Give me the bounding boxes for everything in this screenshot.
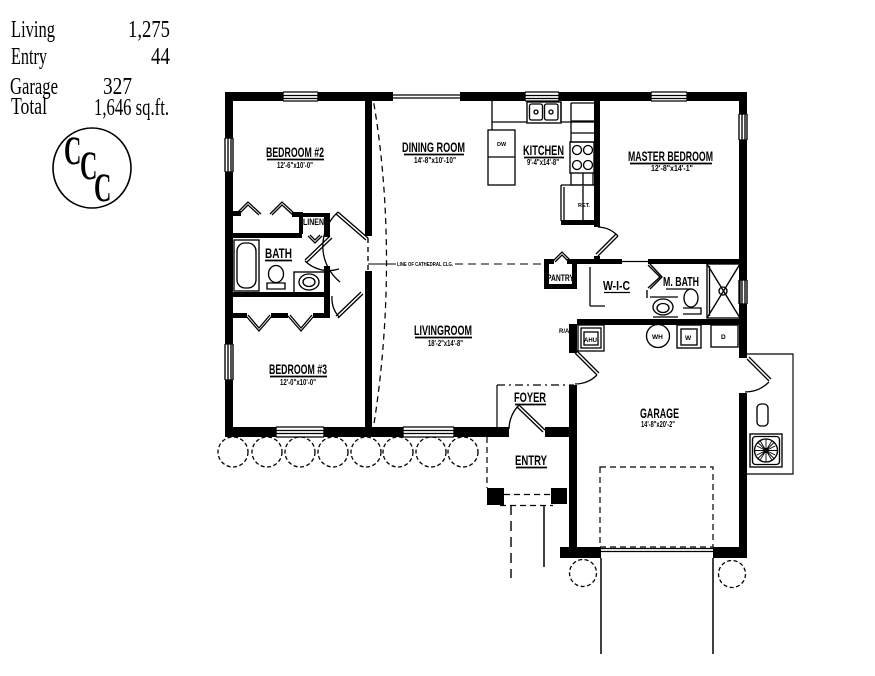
svg-text:D: D xyxy=(721,334,726,341)
svg-text:W: W xyxy=(685,335,692,342)
svg-text:GARAGE: GARAGE xyxy=(640,405,679,421)
svg-text:1,275: 1,275 xyxy=(128,17,170,43)
svg-text:9'-4"x14'-8": 9'-4"x14'-8" xyxy=(527,158,559,167)
svg-text:LINEN: LINEN xyxy=(303,217,324,228)
svg-text:BEDROOM #2: BEDROOM #2 xyxy=(266,144,324,160)
svg-text:KITCHEN: KITCHEN xyxy=(523,142,564,158)
svg-text:RET.: RET. xyxy=(578,203,590,209)
svg-text:WH: WH xyxy=(652,334,663,341)
svg-text:LINE OF CATHEDRAL CLG.: LINE OF CATHEDRAL CLG. xyxy=(397,262,453,268)
svg-text:Total: Total xyxy=(11,94,47,120)
svg-text:18'-2"x14'-8": 18'-2"x14'-8" xyxy=(428,339,463,348)
svg-text:12'-8"x14'-1": 12'-8"x14'-1" xyxy=(651,164,693,173)
svg-text:12'-0"x10'-0": 12'-0"x10'-0" xyxy=(280,378,316,387)
svg-text:12'-6"x10'-0": 12'-6"x10'-0" xyxy=(277,161,313,170)
svg-text:MASTER BEDROOM: MASTER BEDROOM xyxy=(628,148,713,164)
svg-text:ENTRY: ENTRY xyxy=(515,452,547,468)
svg-text:Entry: Entry xyxy=(11,44,47,70)
svg-text:DW: DW xyxy=(497,142,507,148)
svg-text:M. BATH: M. BATH xyxy=(663,275,699,289)
svg-text:R/A: R/A xyxy=(559,329,570,335)
svg-text:W-I-C: W-I-C xyxy=(603,279,630,293)
svg-text:LIVINGROOM: LIVINGROOM xyxy=(414,322,472,338)
svg-text:DINING ROOM: DINING ROOM xyxy=(402,139,465,155)
svg-text:14'-8"x10'-10": 14'-8"x10'-10" xyxy=(414,156,456,165)
svg-text:C: C xyxy=(64,130,81,174)
svg-text:44: 44 xyxy=(151,44,170,70)
svg-text:FOYER: FOYER xyxy=(514,389,546,405)
svg-text:AHU: AHU xyxy=(584,338,597,344)
svg-text:PANTRY: PANTRY xyxy=(547,273,574,283)
svg-text:C: C xyxy=(94,167,111,211)
svg-text:BEDROOM #3: BEDROOM #3 xyxy=(269,361,327,377)
svg-text:14'-8"x20'-2": 14'-8"x20'-2" xyxy=(641,420,675,429)
svg-text:1,646 sq.ft.: 1,646 sq.ft. xyxy=(94,95,169,121)
svg-text:BATH: BATH xyxy=(265,246,292,261)
svg-text:Living: Living xyxy=(11,17,55,43)
